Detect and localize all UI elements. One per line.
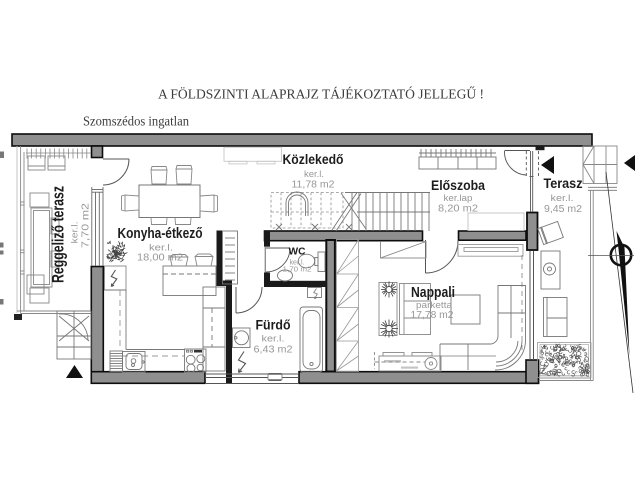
svg-text:7,70 m2: 7,70 m2 <box>80 203 92 248</box>
svg-text:ker.lap: ker.lap <box>444 193 473 203</box>
svg-text:1,70 m2: 1,70 m2 <box>283 265 312 274</box>
svg-text:18,00 m2: 18,00 m2 <box>137 253 183 264</box>
svg-text:ker.l.: ker.l. <box>262 334 285 344</box>
svg-text:6,43 m2: 6,43 m2 <box>254 345 293 356</box>
svg-text:Konyha-étkező: Konyha-étkező <box>118 226 203 242</box>
svg-text:Közlekedő: Közlekedő <box>283 152 344 167</box>
svg-text:WC: WC <box>289 246 306 258</box>
svg-text:9,45 m2: 9,45 m2 <box>544 204 582 215</box>
svg-text:ker.l.: ker.l. <box>304 169 324 179</box>
svg-text:17,78 m2: 17,78 m2 <box>411 310 454 321</box>
svg-text:ker.l.: ker.l. <box>551 193 574 203</box>
svg-text:Szomszédos ingatlan: Szomszédos ingatlan <box>83 114 189 129</box>
svg-text:Terasz: Terasz <box>544 176 583 191</box>
svg-text:Fürdő: Fürdő <box>256 318 291 333</box>
svg-text:A FÖLDSZINTI ALAPRAJZ TÁJÉKOZT: A FÖLDSZINTI ALAPRAJZ TÁJÉKOZTATÓ JELLEG… <box>158 86 484 103</box>
svg-text:11,78 m2: 11,78 m2 <box>292 180 335 191</box>
svg-text:Nappali: Nappali <box>411 284 455 301</box>
svg-text:Reggeliző terasz: Reggeliző terasz <box>50 186 68 283</box>
svg-text:Előszoba: Előszoba <box>431 177 485 193</box>
svg-text:ker.l.: ker.l. <box>149 243 173 253</box>
svg-text:8,20 m2: 8,20 m2 <box>438 204 478 215</box>
